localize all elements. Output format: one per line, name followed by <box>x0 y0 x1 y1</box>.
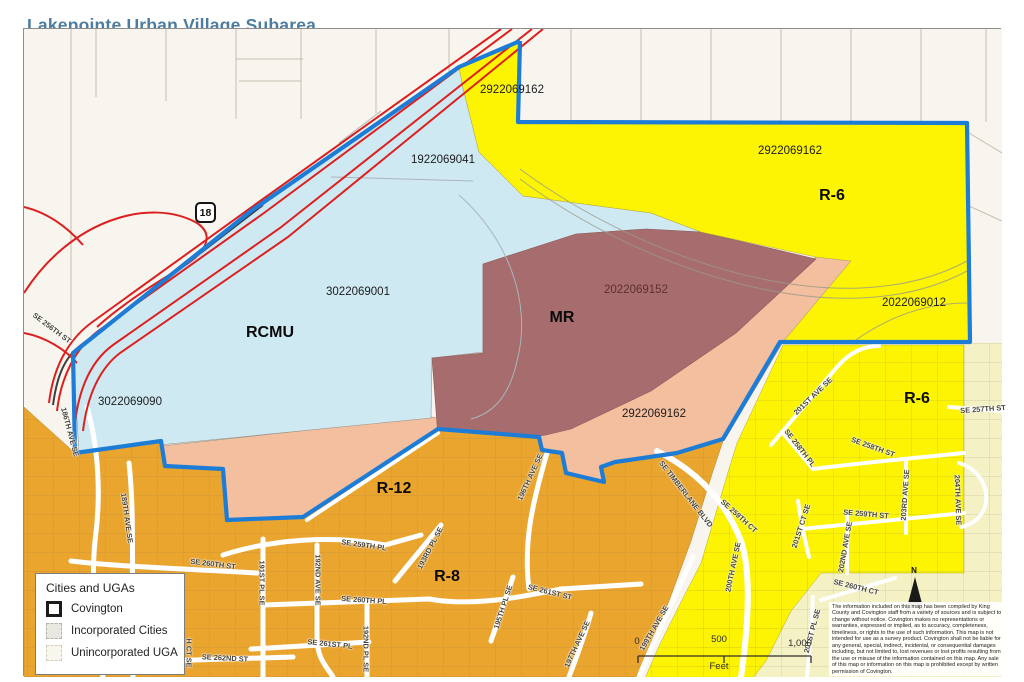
legend-item-incorporated: Incorporated Cities <box>46 623 184 639</box>
north-label: N <box>911 566 917 575</box>
legend-title: Cities and UGAs <box>46 581 184 595</box>
incorporated-cities-swatch-icon <box>46 623 62 639</box>
legend-item-label: Unincorporated UGA <box>71 647 178 659</box>
scale-end-label: 1,000 <box>788 638 812 649</box>
legend-item-covington: Covington <box>46 601 184 617</box>
legend-item-label: Covington <box>71 603 123 615</box>
highway-18-shield: 18 <box>195 202 216 223</box>
legend-item-label: Incorporated Cities <box>71 625 168 637</box>
legend-item-unincorporated: Unincorporated UGA <box>46 645 184 661</box>
scale-zero-label: 0 <box>634 636 639 647</box>
covington-swatch-icon <box>46 601 62 617</box>
scale-unit-label: Feet <box>709 661 728 672</box>
unincorporated-uga-swatch-icon <box>46 645 62 661</box>
legend-box: Cities and UGAs Covington Incorporated C… <box>35 573 185 675</box>
disclaimer-text: The information included on this map has… <box>829 602 1006 676</box>
scale-mid-label: 500 <box>711 634 727 645</box>
